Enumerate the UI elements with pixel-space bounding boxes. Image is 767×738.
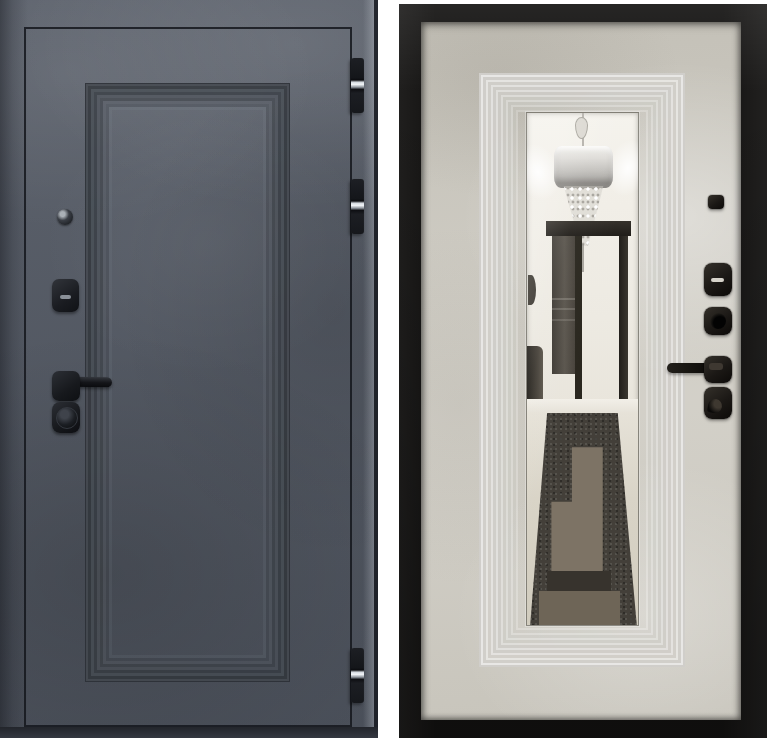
peephole — [57, 209, 73, 225]
door-right-edge-line — [374, 0, 378, 738]
interior-keyhole-slot — [711, 278, 724, 282]
keyhole-slot — [60, 295, 71, 299]
product-photo-two-door-panels — [0, 0, 767, 738]
interior-handle-rose — [704, 356, 732, 383]
lock-escutcheon — [52, 279, 79, 312]
thumbturn — [704, 387, 732, 419]
handle-rose — [52, 371, 80, 401]
handle-neck-highlight — [709, 363, 723, 370]
mirror-sheen — [527, 113, 639, 626]
cylinder-barrel — [56, 407, 78, 429]
door-bottom-edge — [0, 727, 378, 738]
interior-lock-cylinder — [704, 307, 732, 335]
lock-cylinder — [52, 402, 80, 433]
interior-cylinder-barrel — [710, 313, 726, 329]
interior-door-panel — [399, 4, 767, 738]
stepped-panel-molding — [85, 83, 290, 682]
latch-knob — [708, 195, 724, 209]
thumbturn-knob — [707, 398, 723, 414]
full-height-mirror — [526, 112, 639, 626]
exterior-door-panel — [0, 0, 378, 738]
door-right-edge-highlight — [363, 0, 374, 738]
interior-lock-escutcheon — [704, 263, 732, 296]
